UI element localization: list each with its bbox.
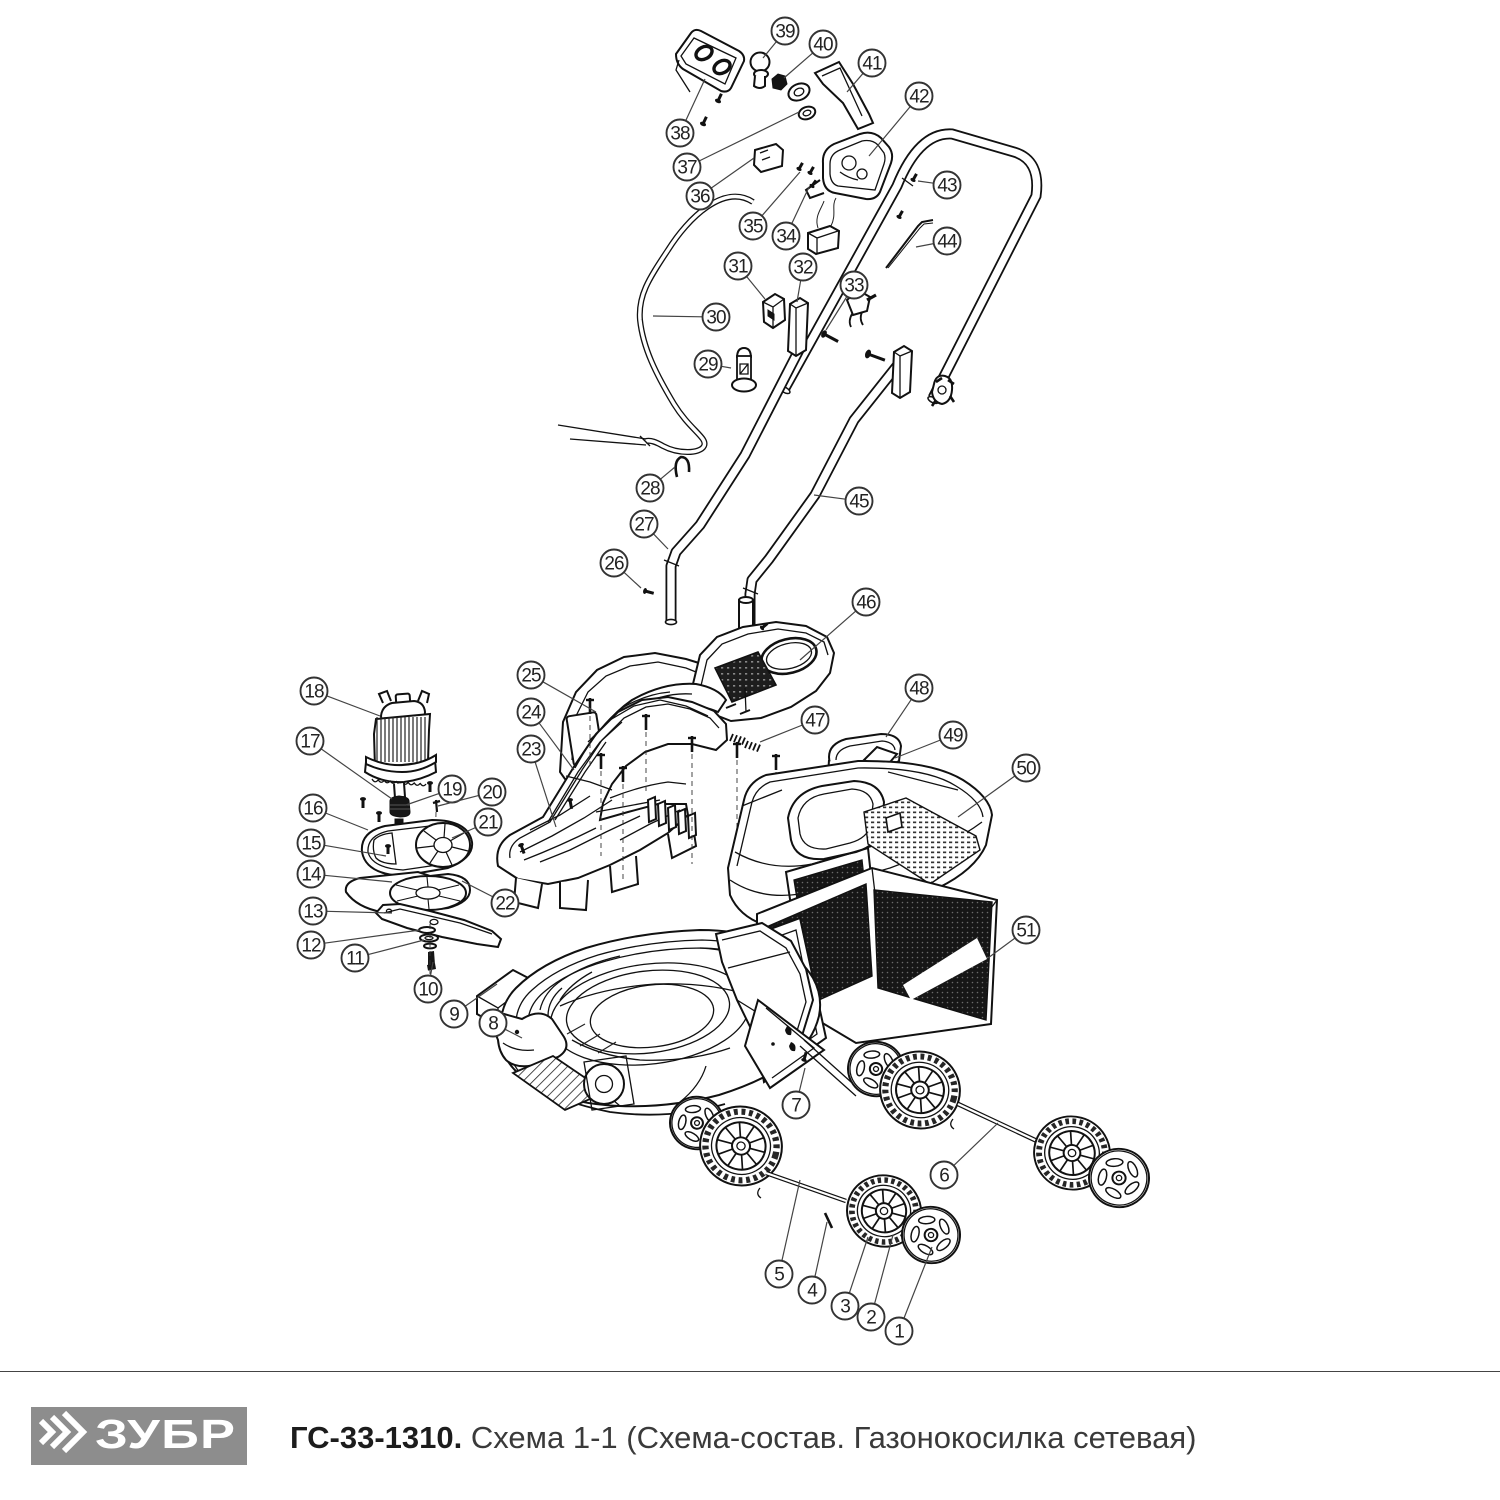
svg-text:25: 25 [521,666,541,687]
svg-text:11: 11 [346,949,364,970]
svg-text:27: 27 [634,515,654,536]
svg-text:45: 45 [849,492,869,513]
svg-text:48: 48 [909,679,929,700]
svg-text:46: 46 [856,593,876,614]
svg-text:12: 12 [301,936,321,957]
svg-text:30: 30 [706,308,726,329]
svg-text:42: 42 [909,87,929,108]
svg-text:28: 28 [640,479,660,500]
svg-text:35: 35 [743,217,763,238]
svg-text:23: 23 [521,740,541,761]
svg-text:14: 14 [301,865,322,886]
svg-text:10: 10 [418,980,438,1001]
svg-text:21: 21 [478,813,498,834]
svg-text:8: 8 [488,1014,498,1035]
svg-text:40: 40 [813,35,833,56]
svg-text:ЗУБР: ЗУБР [95,1411,236,1457]
svg-text:9: 9 [449,1005,459,1026]
svg-text:20: 20 [482,783,502,804]
svg-text:1: 1 [894,1322,904,1343]
svg-text:17: 17 [300,732,320,753]
svg-text:36: 36 [690,187,710,208]
svg-text:31: 31 [728,257,748,278]
svg-text:49: 49 [943,726,963,747]
svg-text:3: 3 [840,1297,850,1318]
svg-text:51: 51 [1016,921,1036,942]
svg-text:16: 16 [303,799,323,820]
svg-text:6: 6 [939,1166,949,1187]
svg-text:13: 13 [303,902,323,923]
svg-text:18: 18 [304,682,324,703]
svg-text:29: 29 [698,355,718,376]
svg-text:47: 47 [805,711,825,732]
svg-text:39: 39 [775,22,795,43]
svg-text:33: 33 [844,276,864,297]
svg-text:32: 32 [793,258,813,279]
svg-text:38: 38 [670,124,690,145]
svg-text:22: 22 [495,894,515,915]
svg-text:2: 2 [866,1308,876,1329]
svg-text:26: 26 [604,554,624,575]
svg-text:43: 43 [937,176,957,197]
svg-text:15: 15 [301,834,321,855]
svg-text:19: 19 [442,780,462,801]
svg-text:4: 4 [807,1281,818,1302]
svg-text:24: 24 [521,703,542,724]
svg-text:50: 50 [1016,759,1036,780]
svg-text:34: 34 [776,227,797,248]
svg-text:41: 41 [862,54,882,75]
svg-text:7: 7 [791,1096,801,1117]
svg-text:5: 5 [774,1265,784,1286]
svg-text:44: 44 [937,232,958,253]
svg-text:37: 37 [677,158,697,179]
